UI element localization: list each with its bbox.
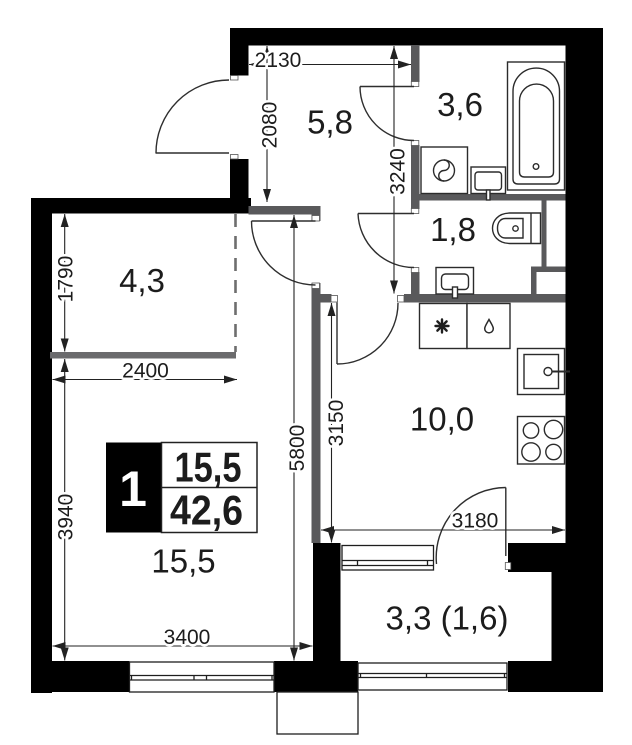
svg-text:2400: 2400 xyxy=(122,360,169,383)
svg-text:5800: 5800 xyxy=(286,425,309,472)
svg-text:1790: 1790 xyxy=(55,256,78,303)
svg-text:2080: 2080 xyxy=(259,102,282,149)
svg-text:1,8: 1,8 xyxy=(430,211,476,248)
svg-text:3,6: 3,6 xyxy=(437,86,483,123)
svg-text:4,3: 4,3 xyxy=(119,262,165,299)
svg-text:3240: 3240 xyxy=(387,148,410,195)
svg-text:3400: 3400 xyxy=(164,626,211,649)
svg-text:3940: 3940 xyxy=(55,494,78,541)
svg-text:15,5: 15,5 xyxy=(175,444,242,491)
svg-text:5,8: 5,8 xyxy=(307,104,353,141)
svg-text:3150: 3150 xyxy=(325,400,348,447)
svg-text:42,6: 42,6 xyxy=(170,487,243,534)
svg-text:3180: 3180 xyxy=(452,510,499,533)
svg-text:15,5: 15,5 xyxy=(151,543,215,580)
svg-text:2130: 2130 xyxy=(255,49,302,72)
svg-text:1: 1 xyxy=(119,461,147,517)
svg-text:3,3 (1,6): 3,3 (1,6) xyxy=(386,600,509,637)
svg-text:10,0: 10,0 xyxy=(410,401,474,438)
